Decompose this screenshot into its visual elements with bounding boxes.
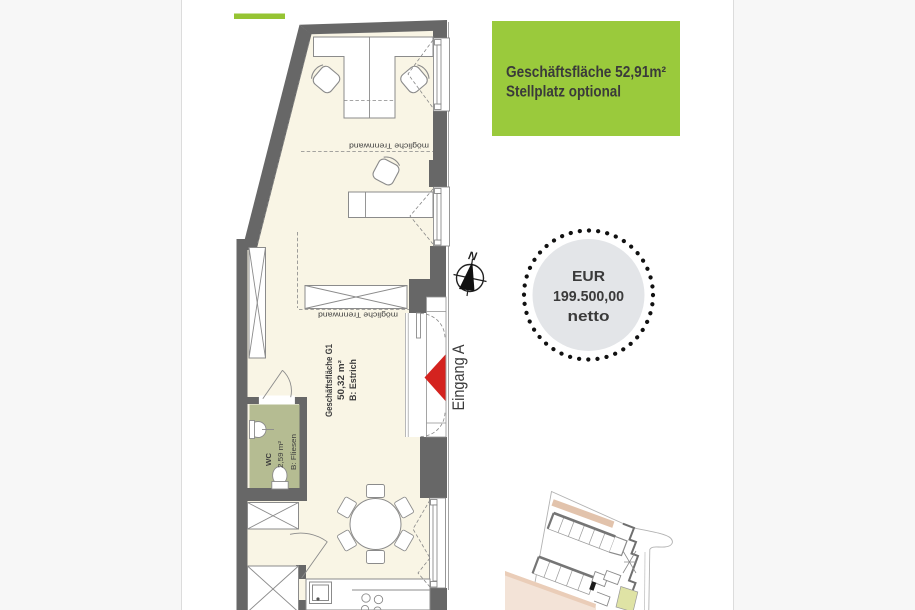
svg-text:Eingang A: Eingang A (449, 344, 468, 411)
svg-text:WC: WC (266, 453, 273, 466)
svg-text:50,32 m²: 50,32 m² (336, 360, 346, 400)
svg-text:Geschäftsfläche G1: Geschäftsfläche G1 (324, 344, 334, 417)
svg-text:EUR: EUR (572, 268, 605, 285)
svg-text:2,59 m²: 2,59 m² (278, 440, 285, 468)
svg-text:199.500,00: 199.500,00 (553, 288, 624, 305)
svg-text:B: Estrich: B: Estrich (348, 359, 358, 401)
svg-text:netto: netto (568, 308, 610, 325)
svg-text:Stellplatz optional: Stellplatz optional (506, 84, 621, 101)
svg-text:mögliche Trennwand: mögliche Trennwand (349, 142, 429, 151)
svg-text:Geschäftsfläche 52,91m²: Geschäftsfläche 52,91m² (506, 64, 666, 81)
svg-text:mögliche Trennwand: mögliche Trennwand (318, 311, 398, 320)
svg-text:B: Fliesen: B: Fliesen (291, 434, 298, 470)
svg-text:N: N (467, 250, 478, 263)
